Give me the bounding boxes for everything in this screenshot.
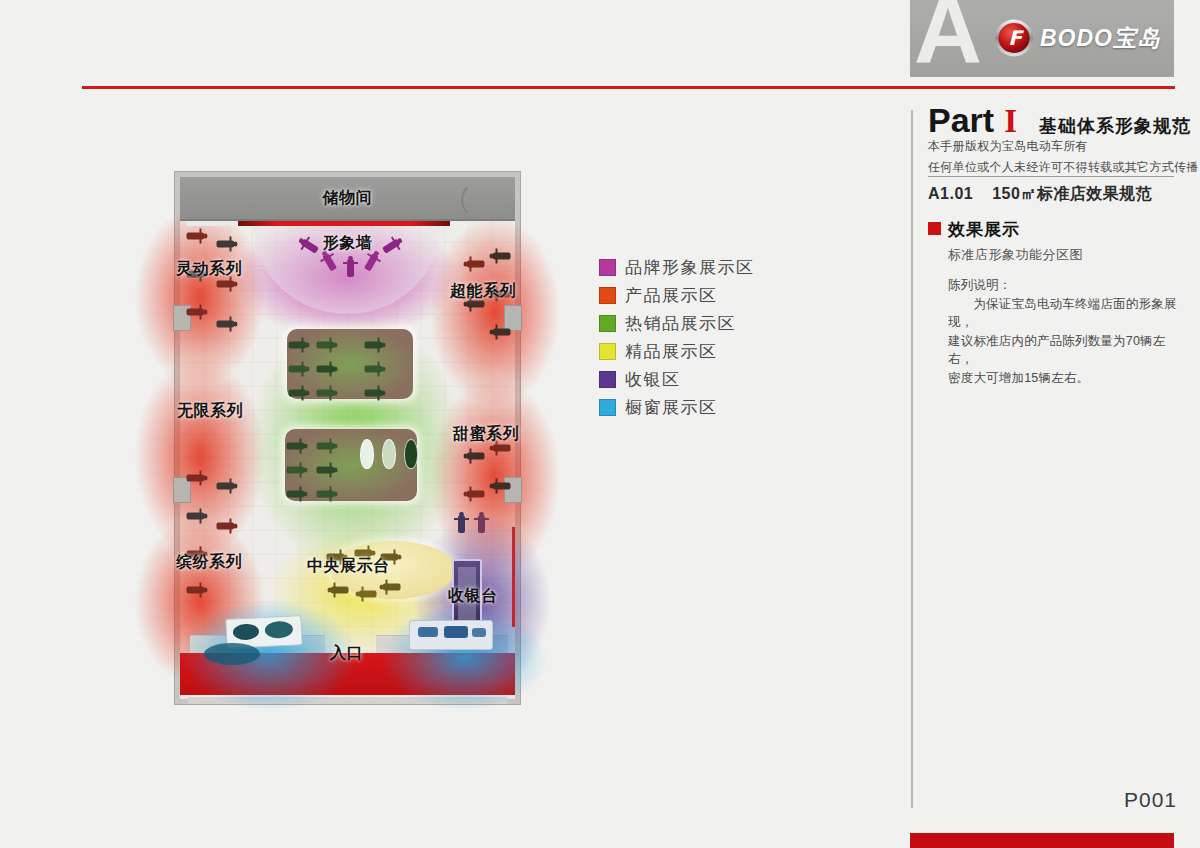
scooter-seat-icon bbox=[404, 439, 418, 469]
scooter-icon bbox=[289, 366, 307, 373]
scooter-icon bbox=[493, 445, 511, 452]
legend-label: 精品展示区 bbox=[625, 340, 718, 363]
scooter-icon bbox=[467, 491, 485, 498]
wall-pillar bbox=[504, 477, 522, 503]
scooter-icon bbox=[187, 513, 205, 520]
legend-item: 收银区 bbox=[599, 365, 755, 393]
red-bullet-square bbox=[928, 222, 941, 235]
scooter-icon bbox=[317, 491, 335, 498]
scooter-icon bbox=[217, 523, 235, 530]
display-item bbox=[233, 623, 260, 640]
legend-color-swatch bbox=[599, 371, 616, 388]
note-title: 陈列说明： bbox=[948, 276, 1178, 295]
part-label: Part bbox=[928, 101, 994, 140]
zone-legend: 品牌形象展示区产品展示区热销品展示区精品展示区收银区橱窗展示区 bbox=[599, 253, 755, 421]
bottom-red-bar bbox=[910, 833, 1174, 848]
display-item bbox=[472, 628, 486, 637]
section-letter: A bbox=[914, 0, 980, 77]
scooter-icon bbox=[317, 443, 335, 450]
label-cashier: 收银台 bbox=[448, 586, 498, 607]
display-item bbox=[444, 626, 468, 638]
block-subtitle: 标准店形象功能分区图 bbox=[948, 246, 1083, 264]
right-wall-red-rail bbox=[512, 527, 515, 627]
display-notes: 陈列说明： 为保证宝岛电动车终端店面的形象展现， 建议标准店内的产品陈列数量为7… bbox=[948, 276, 1178, 387]
legend-label: 品牌形象展示区 bbox=[625, 256, 755, 279]
label-image-wall: 形象墙 bbox=[180, 233, 515, 254]
hot-sale-platform-1 bbox=[287, 329, 413, 399]
note-line-1: 为保证宝岛电动车终端店面的形象展现， bbox=[948, 295, 1178, 332]
scooter-icon bbox=[187, 587, 205, 594]
scooter-icon bbox=[365, 366, 383, 373]
scooter-icon bbox=[317, 467, 335, 474]
legend-color-swatch bbox=[599, 315, 616, 332]
display-item bbox=[418, 627, 438, 637]
scooter-icon bbox=[289, 342, 307, 349]
display-item bbox=[264, 620, 293, 638]
side-shelf bbox=[186, 221, 238, 226]
top-red-rule bbox=[82, 86, 1175, 89]
scooter-icon bbox=[287, 491, 305, 498]
legend-item: 精品展示区 bbox=[599, 337, 755, 365]
page-number: P001 bbox=[1124, 788, 1177, 812]
part-heading: Part I 基础体系形象规范 bbox=[928, 101, 1191, 140]
scooter-icon bbox=[467, 261, 485, 268]
scooter-icon bbox=[217, 321, 235, 328]
scooter-icon bbox=[317, 366, 335, 373]
image-wall-bar bbox=[238, 221, 450, 226]
part-title: 基础体系形象规范 bbox=[1039, 114, 1191, 138]
label-storage-room: 储物间 bbox=[180, 188, 515, 209]
block-title: 效果展示 bbox=[948, 218, 1020, 241]
section-heading: A1.01 150㎡标准店效果规范 bbox=[928, 184, 1152, 205]
legend-item: 热销品展示区 bbox=[599, 309, 755, 337]
wall-pillar bbox=[504, 305, 522, 331]
scooter-icon bbox=[467, 453, 485, 460]
legend-color-swatch bbox=[599, 259, 616, 276]
label-series-tianmi: 甜蜜系列 bbox=[453, 424, 519, 445]
section-code: A1.01 bbox=[928, 185, 973, 202]
brand-name: BODO宝岛 bbox=[1040, 23, 1161, 54]
scooter-icon bbox=[287, 443, 305, 450]
scooter-icon bbox=[287, 467, 305, 474]
scooter-icon bbox=[359, 591, 377, 598]
scooter-icon bbox=[365, 390, 383, 397]
scooter-seat-icon bbox=[360, 439, 374, 469]
scooter-icon bbox=[347, 259, 354, 277]
label-series-lingdong: 灵动系列 bbox=[176, 259, 242, 280]
scooter-seat-icon bbox=[382, 439, 396, 469]
store-floorplan: 储物间 形象墙 灵动系列 超能系列 无限系列 甜蜜系列 缤纷系列 中央展示台 收… bbox=[175, 172, 520, 704]
window-display-table-right bbox=[409, 620, 493, 650]
legend-color-swatch bbox=[599, 399, 616, 416]
part-numeral: I bbox=[1004, 103, 1017, 140]
label-series-wuxian: 无限系列 bbox=[177, 401, 243, 422]
bodo-logo: F BODO宝岛 bbox=[994, 18, 1161, 58]
legend-label: 产品展示区 bbox=[625, 284, 718, 307]
manual-page: A F BODO宝岛 Part I 基础体系形象规范 bbox=[0, 0, 1200, 848]
legend-color-swatch bbox=[599, 343, 616, 360]
window-display-item bbox=[204, 643, 260, 665]
scooter-icon bbox=[289, 390, 307, 397]
copyright-line-2: 任何单位或个人未经许可不得转载或其它方式传播 bbox=[928, 157, 1199, 178]
legend-color-swatch bbox=[599, 287, 616, 304]
scooter-icon bbox=[317, 390, 335, 397]
copyright-line-1: 本手册版权为宝岛电动车所有 bbox=[928, 136, 1199, 157]
hot-sale-platform-2 bbox=[285, 429, 417, 501]
sidewalk-strip bbox=[188, 697, 507, 704]
copyright-divider-line bbox=[928, 176, 1174, 177]
scooter-icon bbox=[478, 515, 485, 533]
label-series-binfen: 缤纷系列 bbox=[176, 552, 242, 573]
svg-text:F: F bbox=[1008, 26, 1024, 50]
scooter-icon bbox=[187, 309, 205, 316]
legend-item: 橱窗展示区 bbox=[599, 393, 755, 421]
copyright-text: 本手册版权为宝岛电动车所有 任何单位或个人未经许可不得转载或其它方式传播 bbox=[928, 136, 1199, 178]
legend-item: 品牌形象展示区 bbox=[599, 253, 755, 281]
scooter-icon bbox=[187, 475, 205, 482]
scooter-icon bbox=[217, 483, 235, 490]
scooter-icon bbox=[217, 281, 235, 288]
scooter-icon bbox=[493, 329, 511, 336]
sidebar-divider-line bbox=[911, 110, 913, 808]
scooter-icon bbox=[383, 584, 401, 591]
section-title: 150㎡标准店效果规范 bbox=[992, 185, 1152, 202]
legend-label: 橱窗展示区 bbox=[625, 396, 718, 419]
legend-label: 收银区 bbox=[625, 368, 681, 391]
note-line-3: 密度大可增加15辆左右。 bbox=[948, 369, 1178, 388]
header-brand-block: A F BODO宝岛 bbox=[910, 0, 1174, 77]
label-entrance: 入口 bbox=[330, 643, 363, 664]
legend-item: 产品展示区 bbox=[599, 281, 755, 309]
scooter-icon bbox=[365, 342, 383, 349]
scooter-icon bbox=[317, 342, 335, 349]
scooter-icon bbox=[331, 587, 349, 594]
label-central-stage: 中央展示台 bbox=[307, 556, 390, 577]
scooter-icon bbox=[493, 483, 511, 490]
legend-label: 热销品展示区 bbox=[625, 312, 736, 335]
label-series-chaoneng: 超能系列 bbox=[450, 281, 516, 302]
bodo-emblem-icon: F bbox=[994, 18, 1034, 58]
scooter-icon bbox=[458, 515, 465, 533]
note-line-2: 建议标准店内的产品陈列数量为70辆左右， bbox=[948, 332, 1178, 369]
